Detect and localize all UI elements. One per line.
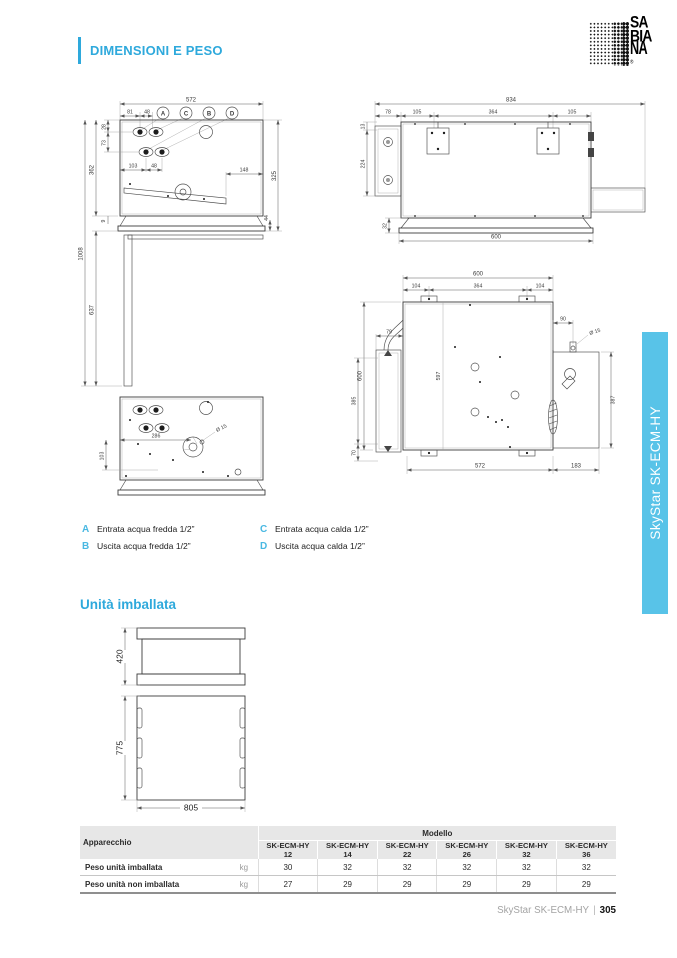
- row-label: Peso unità imballata: [80, 859, 230, 876]
- legend-item: AEntrata acqua fredda 1/2”: [82, 524, 260, 541]
- dim-label: 775: [115, 741, 125, 755]
- svg-text:C: C: [184, 111, 189, 117]
- dim-label: 600: [473, 272, 484, 278]
- table-corner-header: Apparecchio: [80, 826, 258, 859]
- dim-label: 32: [383, 223, 389, 229]
- value-cell: 32: [437, 859, 497, 876]
- value-cell: 32: [556, 859, 616, 876]
- table-row: Peso unità non imballata kg 27 29 29 29 …: [80, 876, 616, 894]
- section-title-packed-unit: Unità imballata: [80, 597, 176, 612]
- dim-label: 81: [127, 110, 133, 116]
- brand-logo: SA BIA NA®: [589, 22, 653, 66]
- dim-label: 103: [100, 452, 106, 461]
- air-duct: [591, 188, 645, 212]
- dim-label: 325: [272, 170, 278, 181]
- legend-item: BUscita acqua fredda 1/2”: [82, 541, 260, 558]
- column-header-model: SK-ECM-HY 12: [258, 841, 318, 860]
- screw-hole: [471, 408, 479, 416]
- value-cell: 29: [497, 876, 557, 894]
- svg-text:A: A: [161, 111, 166, 117]
- knockout-hole: [200, 402, 213, 415]
- legend-text: Entrata acqua calda 1/2”: [275, 524, 369, 534]
- dim-label: 600: [491, 235, 502, 241]
- knockout-hole: [200, 126, 213, 139]
- dim-label: 105: [568, 110, 577, 116]
- value-cell: 32: [377, 859, 437, 876]
- logo-halftone-icon: [589, 22, 613, 66]
- column-header-model: SK-ECM-HY 26: [437, 841, 497, 860]
- dim-label: 805: [184, 803, 198, 813]
- side-view-drawing: 834 78 105 364 105 13 224: [355, 92, 655, 252]
- coil-connection-box: [375, 126, 401, 196]
- value-cell: 29: [318, 876, 378, 894]
- carton-side-view: [137, 628, 245, 685]
- dim-label: 104: [536, 284, 545, 290]
- column-header-model: SK-ECM-HY 32: [497, 841, 557, 860]
- dim-label: 13: [361, 124, 367, 130]
- svg-text:D: D: [230, 111, 235, 117]
- dim-label: Ø 15: [589, 328, 602, 337]
- dim-label: 104: [412, 284, 421, 290]
- value-cell: 29: [437, 876, 497, 894]
- value-cell: 30: [258, 859, 318, 876]
- catalog-page: DIMENSIONI E PESO SA BIA NA® SkyStar SK-…: [0, 0, 677, 958]
- unit-cell: kg: [230, 859, 258, 876]
- plan-view-drawing: 600 104 364 104 600: [350, 262, 650, 506]
- dim-label: 387: [611, 396, 617, 405]
- legend-text: Uscita acqua fredda 1/2”: [97, 541, 191, 551]
- label-d-bubble: D: [226, 107, 238, 119]
- dim-label: 1008: [79, 247, 85, 261]
- unit-cell: kg: [230, 876, 258, 894]
- logo-halftone-icon: [613, 22, 622, 66]
- dim-label: 364: [474, 284, 483, 290]
- logo-line: NA®: [630, 42, 652, 74]
- dim-label: 600: [358, 370, 364, 381]
- label-c-bubble: C: [180, 107, 192, 119]
- dim-label: 79: [386, 330, 392, 336]
- dim-label: 78: [385, 110, 391, 116]
- legend-text: Uscita acqua calda 1/2”: [275, 541, 365, 551]
- siphon-elbow: [562, 369, 576, 390]
- base-stand: [399, 218, 593, 233]
- page-title: DIMENSIONI E PESO: [90, 43, 223, 58]
- dim-label: 70: [352, 450, 358, 456]
- dim-label: 637: [90, 304, 96, 315]
- dim-label: 28: [102, 124, 108, 130]
- legend-item: CEntrata acqua calda 1/2”: [260, 524, 369, 541]
- screw-hole: [471, 363, 479, 371]
- pump: [175, 184, 191, 200]
- column-header-model: SK-ECM-HY 14: [318, 841, 378, 860]
- dim-label: 364: [489, 110, 498, 116]
- legend-item: DUscita acqua calda 1/2”: [260, 541, 369, 558]
- dim-label: 44: [264, 215, 270, 221]
- value-cell: 32: [497, 859, 557, 876]
- dim-label: 9: [101, 219, 107, 222]
- footer-product: SkyStar SK-ECM-HY: [497, 905, 589, 916]
- edge-clip: [588, 132, 594, 141]
- legend-key: A: [82, 524, 91, 535]
- base-stand: [118, 480, 265, 495]
- legend-key: B: [82, 541, 91, 552]
- edge-clip: [588, 148, 594, 157]
- footer-divider: |: [589, 905, 600, 916]
- legend-key: C: [260, 524, 269, 535]
- dim-label: 572: [186, 98, 197, 104]
- registered-mark: ®: [630, 60, 633, 67]
- dim-label: Ø 15: [215, 423, 228, 434]
- svg-text:B: B: [207, 111, 212, 117]
- dim-label: 103: [129, 164, 138, 170]
- value-cell: 27: [258, 876, 318, 894]
- dim-label: 105: [413, 110, 422, 116]
- dim-label: 48: [144, 110, 150, 116]
- packed-unit-drawing: 420 775 805: [88, 616, 303, 822]
- dim-label: 48: [151, 164, 157, 170]
- logo-wordmark: SA BIA NA®: [630, 22, 653, 66]
- hanger-bracket: [427, 122, 449, 154]
- title-accent-bar: [78, 37, 81, 64]
- dim-label: 73: [102, 140, 108, 146]
- table-group-header: Modello: [258, 826, 616, 841]
- column-header-model: SK-ECM-HY 22: [377, 841, 437, 860]
- rear-panel: [124, 235, 263, 386]
- dim-label: 90: [560, 317, 566, 323]
- screw-hole: [511, 391, 519, 399]
- unit-body: [401, 122, 591, 218]
- unit-top-panel: [403, 302, 553, 450]
- page-footer: SkyStar SK-ECM-HY|305: [330, 905, 616, 916]
- front-view-unit: 572 81 48 A C B D: [79, 98, 283, 387]
- dim-label: 572: [475, 464, 486, 470]
- weights-table: Apparecchio Modello SK-ECM-HY 12 SK-ECM-…: [80, 826, 616, 894]
- underside-view-unit: 286 Ø 15 103: [100, 397, 266, 495]
- coil-connection-box: [376, 320, 403, 452]
- dim-label: 420: [115, 649, 125, 663]
- dim-label: 385: [352, 397, 358, 406]
- pipe-connections: [133, 128, 169, 157]
- label-a-bubble: A: [157, 107, 169, 119]
- attachment-box: [553, 352, 599, 448]
- dim-label: 183: [571, 464, 582, 470]
- dim-label: 148: [240, 168, 249, 174]
- legend-key: D: [260, 541, 269, 552]
- logo-halftone-icon: [622, 22, 629, 66]
- dim-label: 224: [361, 160, 367, 169]
- footer-page-number: 305: [600, 905, 616, 916]
- hanger-bracket: [537, 122, 559, 154]
- legend-text: Entrata acqua fredda 1/2”: [97, 524, 194, 534]
- label-b-bubble: B: [203, 107, 215, 119]
- base-stand: [118, 216, 265, 231]
- pipe-connections: [133, 406, 169, 433]
- row-label: Peso unità non imballata: [80, 876, 230, 894]
- value-cell: 29: [377, 876, 437, 894]
- carton-front-view: [137, 696, 245, 800]
- drain-hole: [235, 469, 241, 475]
- table-row: Peso unità imballata kg 30 32 32 32 32 3…: [80, 859, 616, 876]
- dim-label: 597: [436, 372, 442, 381]
- dim-label: 362: [90, 164, 96, 175]
- value-cell: 32: [318, 859, 378, 876]
- column-header-model: SK-ECM-HY 36: [556, 841, 616, 860]
- dim-label: 834: [506, 98, 517, 104]
- connection-legend: AEntrata acqua fredda 1/2” BUscita acqua…: [82, 524, 369, 558]
- value-cell: 29: [556, 876, 616, 894]
- dim-label: 286: [152, 434, 161, 440]
- front-view-drawing: 572 81 48 A C B D: [78, 92, 340, 504]
